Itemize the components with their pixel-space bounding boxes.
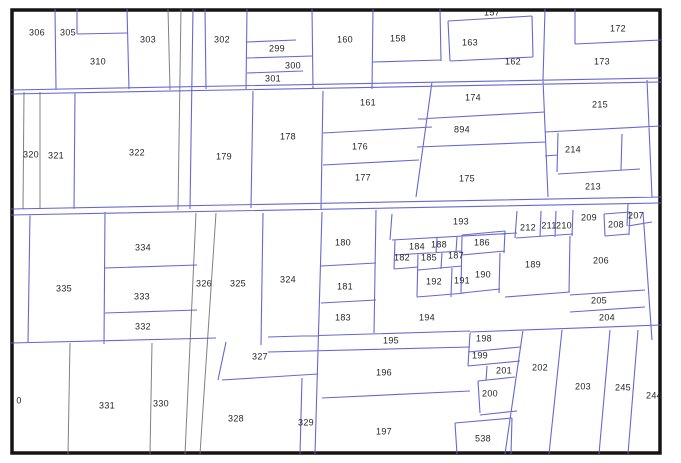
parcel-label-335: 335 — [56, 285, 72, 294]
parcel-label-202: 202 — [532, 364, 548, 373]
parcel-label-206: 206 — [593, 257, 609, 266]
parcel-label-301: 301 — [265, 75, 281, 84]
parcel-label-162: 162 — [505, 58, 521, 67]
parcel-label-176: 176 — [352, 143, 368, 152]
parcel-label-194: 194 — [419, 314, 435, 323]
parcel-label-200: 200 — [482, 390, 498, 399]
parcel-label-303: 303 — [140, 36, 156, 45]
parcel-label-214: 214 — [565, 146, 581, 155]
parcel-label-187: 187 — [448, 252, 464, 261]
parcel-label-175: 175 — [459, 175, 475, 184]
parcel-label-330: 330 — [153, 400, 169, 409]
parcel-label-199: 199 — [472, 352, 488, 361]
parcel-label-333: 333 — [134, 293, 150, 302]
parcel-label-193: 193 — [453, 218, 469, 227]
parcel-label-190: 190 — [475, 271, 491, 280]
parcel-label-192: 192 — [426, 278, 442, 287]
parcel-label-538: 538 — [475, 435, 491, 444]
parcel-label-163: 163 — [462, 39, 478, 48]
parcel-label-205: 205 — [591, 297, 607, 306]
parcel-label-208: 208 — [608, 221, 624, 230]
parcel-label-212: 212 — [520, 224, 536, 233]
parcel-label-302: 302 — [214, 36, 230, 45]
parcel-label-299: 299 — [269, 45, 285, 54]
parcel-label-245: 245 — [615, 384, 631, 393]
parcel-label-160: 160 — [337, 36, 353, 45]
parcel-label-178: 178 — [280, 133, 296, 142]
parcel-label-324: 324 — [280, 276, 296, 285]
parcel-label-181: 181 — [337, 283, 353, 292]
parcel-label-161: 161 — [360, 99, 376, 108]
parcel-label-305: 305 — [60, 29, 76, 38]
parcel-label-185: 185 — [421, 254, 437, 263]
parcel-label-186: 186 — [474, 239, 490, 248]
parcel-label-306: 306 — [29, 29, 45, 38]
parcel-label-331: 331 — [99, 402, 115, 411]
parcel-label-196: 196 — [376, 369, 392, 378]
parcel-label-204: 204 — [599, 314, 615, 323]
parcel-label-325: 325 — [230, 280, 246, 289]
parcel-label-300: 300 — [285, 62, 301, 71]
parcel-label-157: 157 — [484, 9, 500, 18]
parcel-label-894: 894 — [454, 126, 470, 135]
parcel-label-184: 184 — [409, 243, 425, 252]
parcel-label-310: 310 — [90, 58, 106, 67]
parcel-label-321: 321 — [48, 152, 64, 161]
parcel-label-213: 213 — [585, 183, 601, 192]
parcel-label-195: 195 — [383, 337, 399, 346]
parcel-label-209: 209 — [581, 214, 597, 223]
parcel-labels-layer: 3063053103033022993003011601581571631621… — [0, 0, 681, 463]
parcel-label-174: 174 — [465, 94, 481, 103]
parcel-label-158: 158 — [390, 35, 406, 44]
parcel-label-183: 183 — [335, 314, 351, 323]
parcel-label-332: 332 — [135, 323, 151, 332]
parcel-label-179: 179 — [216, 153, 232, 162]
parcel-label-326: 326 — [196, 280, 212, 289]
parcel-label-207: 207 — [628, 212, 644, 221]
parcel-label-322: 322 — [129, 149, 145, 158]
parcel-label-172: 172 — [610, 25, 626, 34]
parcel-label-180: 180 — [335, 239, 351, 248]
parcel-label-0: 0 — [16, 397, 21, 406]
parcel-label-173: 173 — [594, 58, 610, 67]
parcel-label-320: 320 — [23, 151, 39, 160]
cadastral-map[interactable]: 3063053103033022993003011601581571631621… — [0, 0, 681, 463]
parcel-label-327: 327 — [252, 353, 268, 362]
parcel-label-210: 210 — [556, 222, 572, 231]
parcel-label-201: 201 — [496, 367, 512, 376]
parcel-label-334: 334 — [135, 244, 151, 253]
parcel-label-177: 177 — [355, 174, 371, 183]
parcel-label-182: 182 — [394, 254, 410, 263]
parcel-label-244: 244 — [646, 392, 662, 401]
parcel-label-198: 198 — [476, 335, 492, 344]
parcel-label-203: 203 — [575, 383, 591, 392]
parcel-label-329: 329 — [298, 419, 314, 428]
parcel-label-188: 188 — [431, 241, 447, 250]
parcel-label-197: 197 — [376, 428, 392, 437]
parcel-label-328: 328 — [228, 415, 244, 424]
parcel-label-215: 215 — [592, 101, 608, 110]
parcel-label-189: 189 — [525, 261, 541, 270]
parcel-label-191: 191 — [454, 277, 470, 286]
parcel-label-211: 211 — [541, 222, 556, 231]
